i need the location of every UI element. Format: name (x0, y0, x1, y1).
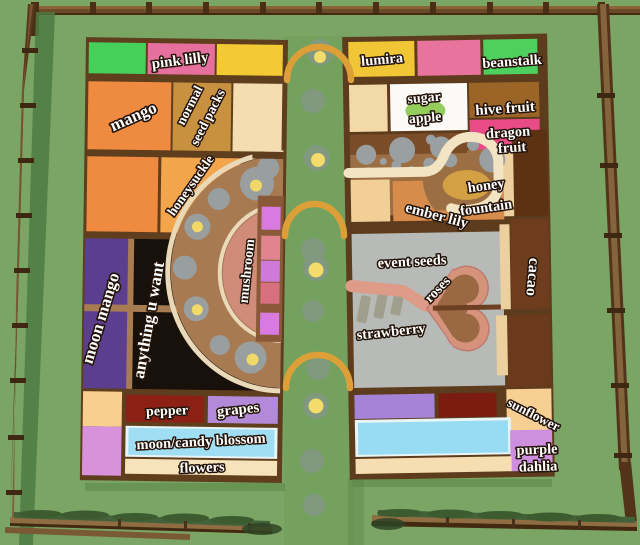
svg-text:cacao: cacao (522, 257, 542, 297)
svg-text:flowers: flowers (179, 459, 225, 477)
svg-text:purple: purple (516, 441, 558, 458)
svg-text:apple: apple (408, 110, 442, 128)
svg-text:sugar: sugar (407, 90, 442, 108)
svg-text:pepper: pepper (146, 403, 188, 419)
svg-text:fruit: fruit (497, 139, 526, 157)
svg-text:dahlia: dahlia (518, 458, 558, 475)
